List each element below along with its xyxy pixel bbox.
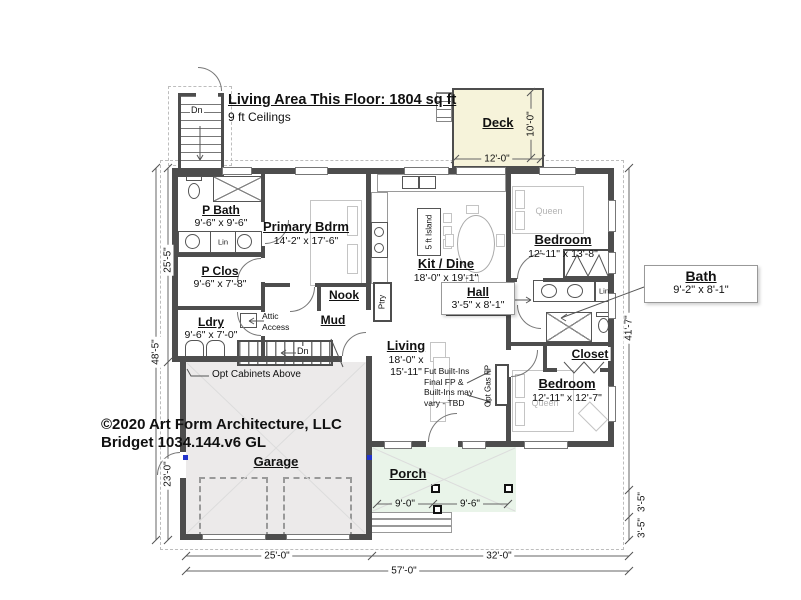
wall	[315, 283, 366, 287]
porch-post	[431, 484, 440, 493]
title-block: Living Area This Floor: 1804 sq ft 9 ft …	[228, 92, 456, 124]
sink	[185, 234, 200, 249]
porch-post	[433, 505, 442, 514]
room-label-garage: Garage	[254, 454, 299, 470]
window	[539, 167, 576, 175]
window	[608, 386, 616, 422]
dim-deck-width: 12'-0"	[481, 154, 512, 165]
wall	[261, 174, 265, 222]
wall	[178, 253, 261, 257]
dim-garage-height: 23'-0"	[163, 458, 174, 489]
dim-deck-depth: 10'-0"	[526, 108, 537, 139]
sink	[541, 284, 557, 298]
future-builtins-note: Fut Built-Ins Final FP & Built-Ins may v…	[424, 366, 473, 409]
floor-plan-canvas: Dn Dn	[0, 0, 801, 600]
window	[222, 167, 252, 175]
linen-label: Lin	[599, 287, 609, 296]
window	[608, 252, 616, 274]
room-label-kitdine: Kit / Dine 18'-0" x 19'-1"	[414, 256, 479, 284]
garage-door-panel	[199, 477, 268, 538]
window	[384, 441, 412, 449]
porch-step	[368, 526, 452, 533]
room-label-mud: Mud	[321, 313, 346, 327]
garage-door-opening	[342, 356, 366, 362]
stairwell-door-opening	[196, 91, 218, 97]
room-label-porch: Porch	[390, 466, 427, 482]
sink	[237, 234, 252, 249]
copyright-block: ©2020 Art Form Architecture, LLC Bridget…	[101, 416, 342, 452]
dim-total-width: 57'-0"	[388, 566, 419, 577]
overhead-door-opening	[202, 534, 266, 540]
wall	[261, 246, 265, 258]
bath-label-box: Bath 9'-2" x 8'-1"	[644, 265, 758, 303]
fireplace	[495, 364, 509, 406]
stairwell-door-arc	[198, 67, 222, 91]
wall	[261, 283, 290, 287]
pillow	[515, 190, 525, 209]
stairwell-down-label: Dn	[190, 105, 204, 115]
dim-right-main: 41'-7"	[624, 312, 635, 343]
pillow	[515, 374, 525, 398]
wall	[506, 174, 511, 288]
window	[295, 167, 328, 175]
wall	[366, 362, 372, 540]
stairs-down-label: Dn	[296, 346, 310, 356]
dim-right-width: 32'-0"	[483, 551, 514, 562]
room-label-primary: Primary Bdrm 14'-2" x 17'-6"	[263, 219, 349, 247]
wall	[366, 174, 371, 310]
toilet-tank	[186, 176, 202, 181]
kitchen-counter	[377, 174, 506, 192]
dim-porch-depth-1: 3'-5"	[637, 489, 648, 515]
porch-post	[504, 484, 513, 493]
attic-access-note: Attic Access	[262, 311, 289, 332]
utility-marker	[367, 455, 372, 460]
overhead-door-opening	[286, 534, 350, 540]
chair	[466, 205, 479, 214]
burner	[374, 243, 384, 253]
burner	[374, 227, 384, 237]
dim-left-total: 48'-5"	[151, 336, 162, 367]
linen-label: Lin	[218, 238, 228, 247]
room-label-nook: Nook	[329, 288, 359, 302]
island-label: 5 ft Island	[425, 215, 434, 250]
wall	[178, 306, 261, 310]
wall	[317, 287, 321, 311]
wall	[600, 368, 613, 372]
wall	[261, 336, 265, 356]
pillow	[347, 244, 358, 274]
dim-porch-width-2: 9'-6"	[457, 499, 483, 510]
pillow	[515, 211, 525, 230]
toilet-bowl	[188, 183, 200, 199]
wall	[543, 278, 613, 282]
room-label-living: Living 18'-0" x 15'-11"	[387, 338, 425, 379]
sink	[567, 284, 583, 298]
garage-door-panel	[283, 477, 352, 538]
pillow	[515, 402, 525, 426]
opt-gas-fp-label: Opt Gas FP	[484, 365, 493, 407]
copyright-line2: Bridget 1034.144.v6 GL	[101, 434, 342, 452]
dryer	[206, 340, 225, 357]
shower	[546, 312, 592, 342]
dim-left-upper: 25'-5"	[163, 244, 174, 275]
utility-marker	[183, 455, 188, 460]
room-label-bedroom2: Bedroom 12'-11" x 12'-7"	[532, 376, 602, 404]
washer	[185, 340, 204, 357]
main-stairs	[237, 340, 333, 366]
dim-porch-width-1: 9'-0"	[392, 499, 418, 510]
queen-bed-label: Queen	[535, 206, 562, 216]
pantry-label: Ptry	[378, 295, 387, 309]
room-label-bedroom1: Bedroom 12'-11" x 13'-8"	[528, 232, 598, 260]
room-label-closet: Closet	[570, 347, 611, 361]
window	[524, 441, 568, 449]
living-area-title: Living Area This Floor: 1804 sq ft	[228, 92, 456, 108]
window	[462, 441, 486, 449]
opt-cabinets-note: Opt Cabinets Above	[212, 369, 301, 382]
hall-label-box: Hall 3'-5" x 8'-1"	[441, 282, 515, 315]
window	[404, 167, 449, 175]
window	[608, 200, 616, 232]
room-label-pclos: P Clos 9'-6" x 7'-8"	[194, 264, 247, 291]
room-label-deck: Deck	[482, 115, 513, 131]
room-label-ldry: Ldry 9'-6" x 7'-0"	[185, 315, 238, 342]
porch-step	[368, 519, 452, 526]
kitchen-sink	[419, 176, 436, 189]
stool	[443, 213, 452, 223]
room-label-pbath: P Bath 9'-6" x 9'-6"	[195, 203, 248, 230]
chair	[496, 234, 505, 247]
copyright-line1: ©2020 Art Form Architecture, LLC	[101, 416, 342, 434]
kitchen-sink	[402, 176, 419, 189]
window	[608, 293, 616, 319]
shower	[213, 176, 263, 202]
wall	[543, 368, 557, 372]
chair	[445, 234, 454, 247]
wall	[511, 342, 613, 346]
dim-garage-width: 25'-0"	[261, 551, 292, 562]
sliding-door	[456, 167, 506, 175]
ceiling-height-note: 9 ft Ceilings	[228, 110, 456, 124]
dim-porch-depth-2: 3'-5"	[637, 515, 648, 541]
